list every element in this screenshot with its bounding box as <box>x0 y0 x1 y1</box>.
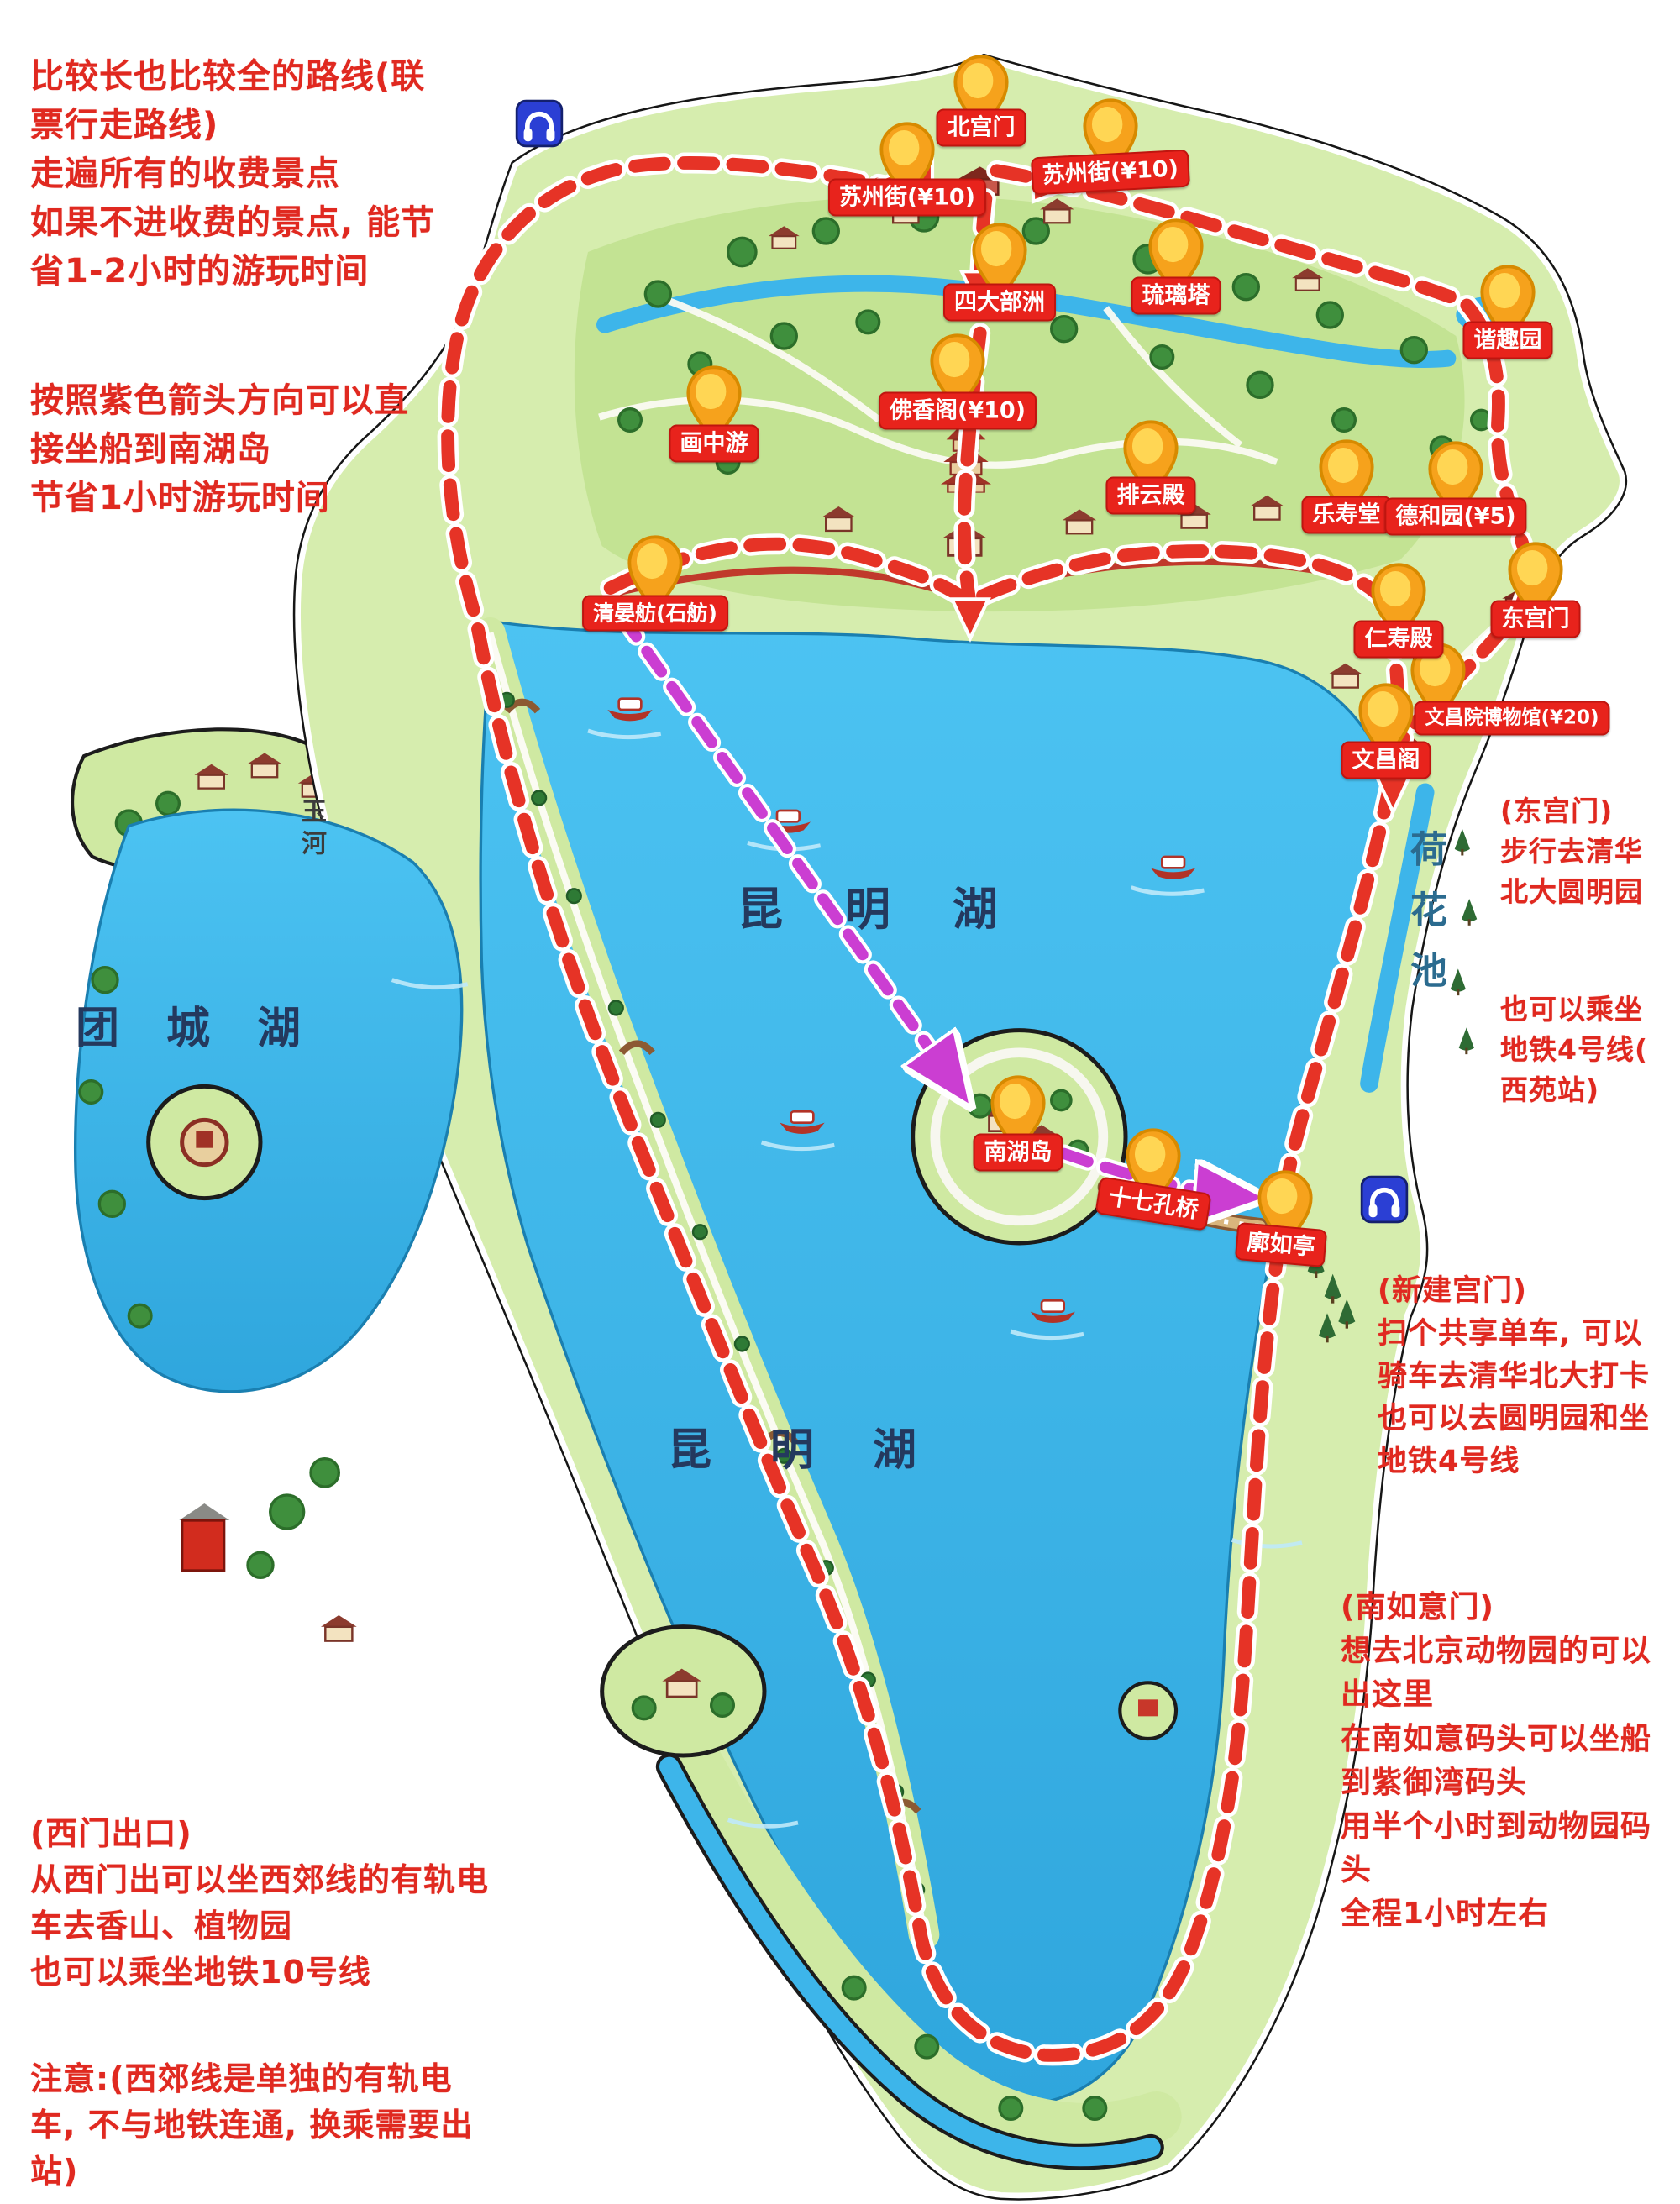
poi-badge-wenchangyuan: 文昌院博物馆(¥20) <box>1414 701 1609 736</box>
poi-badge-deheyuan: 德和园(¥5) <box>1384 498 1526 536</box>
note-west-gate: (西门出口) 从西门出可以坐西郊线的有轨电 车去香山、植物园 也可以乘坐地铁10… <box>30 1811 534 1996</box>
note-east-gate-1: (东宫门) 步行去清华 北大圆明园 <box>1500 791 1680 912</box>
poi-badge-kuoruting: 廓如亭 <box>1235 1222 1328 1267</box>
poi-badge-paiyundian: 排云殿 <box>1106 477 1196 515</box>
lake-label-kunming-north: 昆明湖 <box>738 872 1060 938</box>
note-south-ruyi-gate: (南如意门) 想去北京动物园的可以 出这里 在南如意码头可以坐船 到紫御湾码头 … <box>1341 1586 1680 1937</box>
lake-label-tuancheng: 团城湖 <box>76 993 348 1056</box>
note-transfer-notice: 注意:(西郊线是单独的有轨电 车, 不与地铁连通, 换乘需要出 站) <box>30 2056 534 2195</box>
poi-badge-huazhongyou: 画中游 <box>669 425 759 463</box>
lake-label-hehuachi: 荷花池 <box>1398 830 1452 1011</box>
poi-badge-suzhoujie-west: 苏州街(¥10) <box>828 179 986 217</box>
note-route-overview: 比较长也比较全的路线(联 票行走路线) 走遍所有的收费景点 如果不进收费的景点,… <box>30 52 568 296</box>
poi-badge-nanhudao: 南湖岛 <box>974 1134 1063 1172</box>
poi-badge-liulita: 琉璃塔 <box>1131 277 1221 315</box>
poi-badge-sidabuzhou: 四大部洲 <box>943 284 1056 322</box>
poi-badge-suzhoujie-east: 苏州街(¥10) <box>1031 150 1190 196</box>
poi-badge-renshoudian: 仁寿殿 <box>1354 621 1444 659</box>
lake-label-yuhe: 玉河 <box>292 798 329 862</box>
poi-badge-shiqikongqiao: 十七孔桥 <box>1095 1176 1211 1231</box>
note-east-gate-2: 也可以乘坐 地铁4号线( 西苑站) <box>1500 989 1680 1110</box>
note-purple-arrow: 按照紫色箭头方向可以直 接坐船到南湖岛 节省1小时游玩时间 <box>30 376 501 522</box>
poi-badge-foxiangge: 佛香阁(¥10) <box>879 392 1037 430</box>
poi-badge-qingyanfang: 清晏舫(石舫) <box>582 596 728 632</box>
poi-badge-leshoutang: 乐寿堂 <box>1302 496 1392 534</box>
note-xinjian-gate: (新建宫门) 扫个共享单车, 可以 骑车去清华北大打卡 也可以去圆明园和坐 地铁… <box>1378 1270 1680 1483</box>
summer-palace-map-page: 比较长也比较全的路线(联 票行走路线) 走遍所有的收费景点 如果不进收费的景点,… <box>0 0 1680 2204</box>
poi-badge-beigongmen: 北宫门 <box>937 109 1026 147</box>
text-overlay: 比较长也比较全的路线(联 票行走路线) 走遍所有的收费景点 如果不进收费的景点,… <box>0 0 1680 2204</box>
poi-badge-wenchangge: 文昌阁 <box>1341 742 1431 779</box>
poi-badge-xiequyuan: 谐趣园 <box>1463 322 1553 359</box>
poi-badge-donggongmen: 东宫门 <box>1491 601 1581 638</box>
lake-label-kunming-south: 昆明湖 <box>668 1414 975 1477</box>
